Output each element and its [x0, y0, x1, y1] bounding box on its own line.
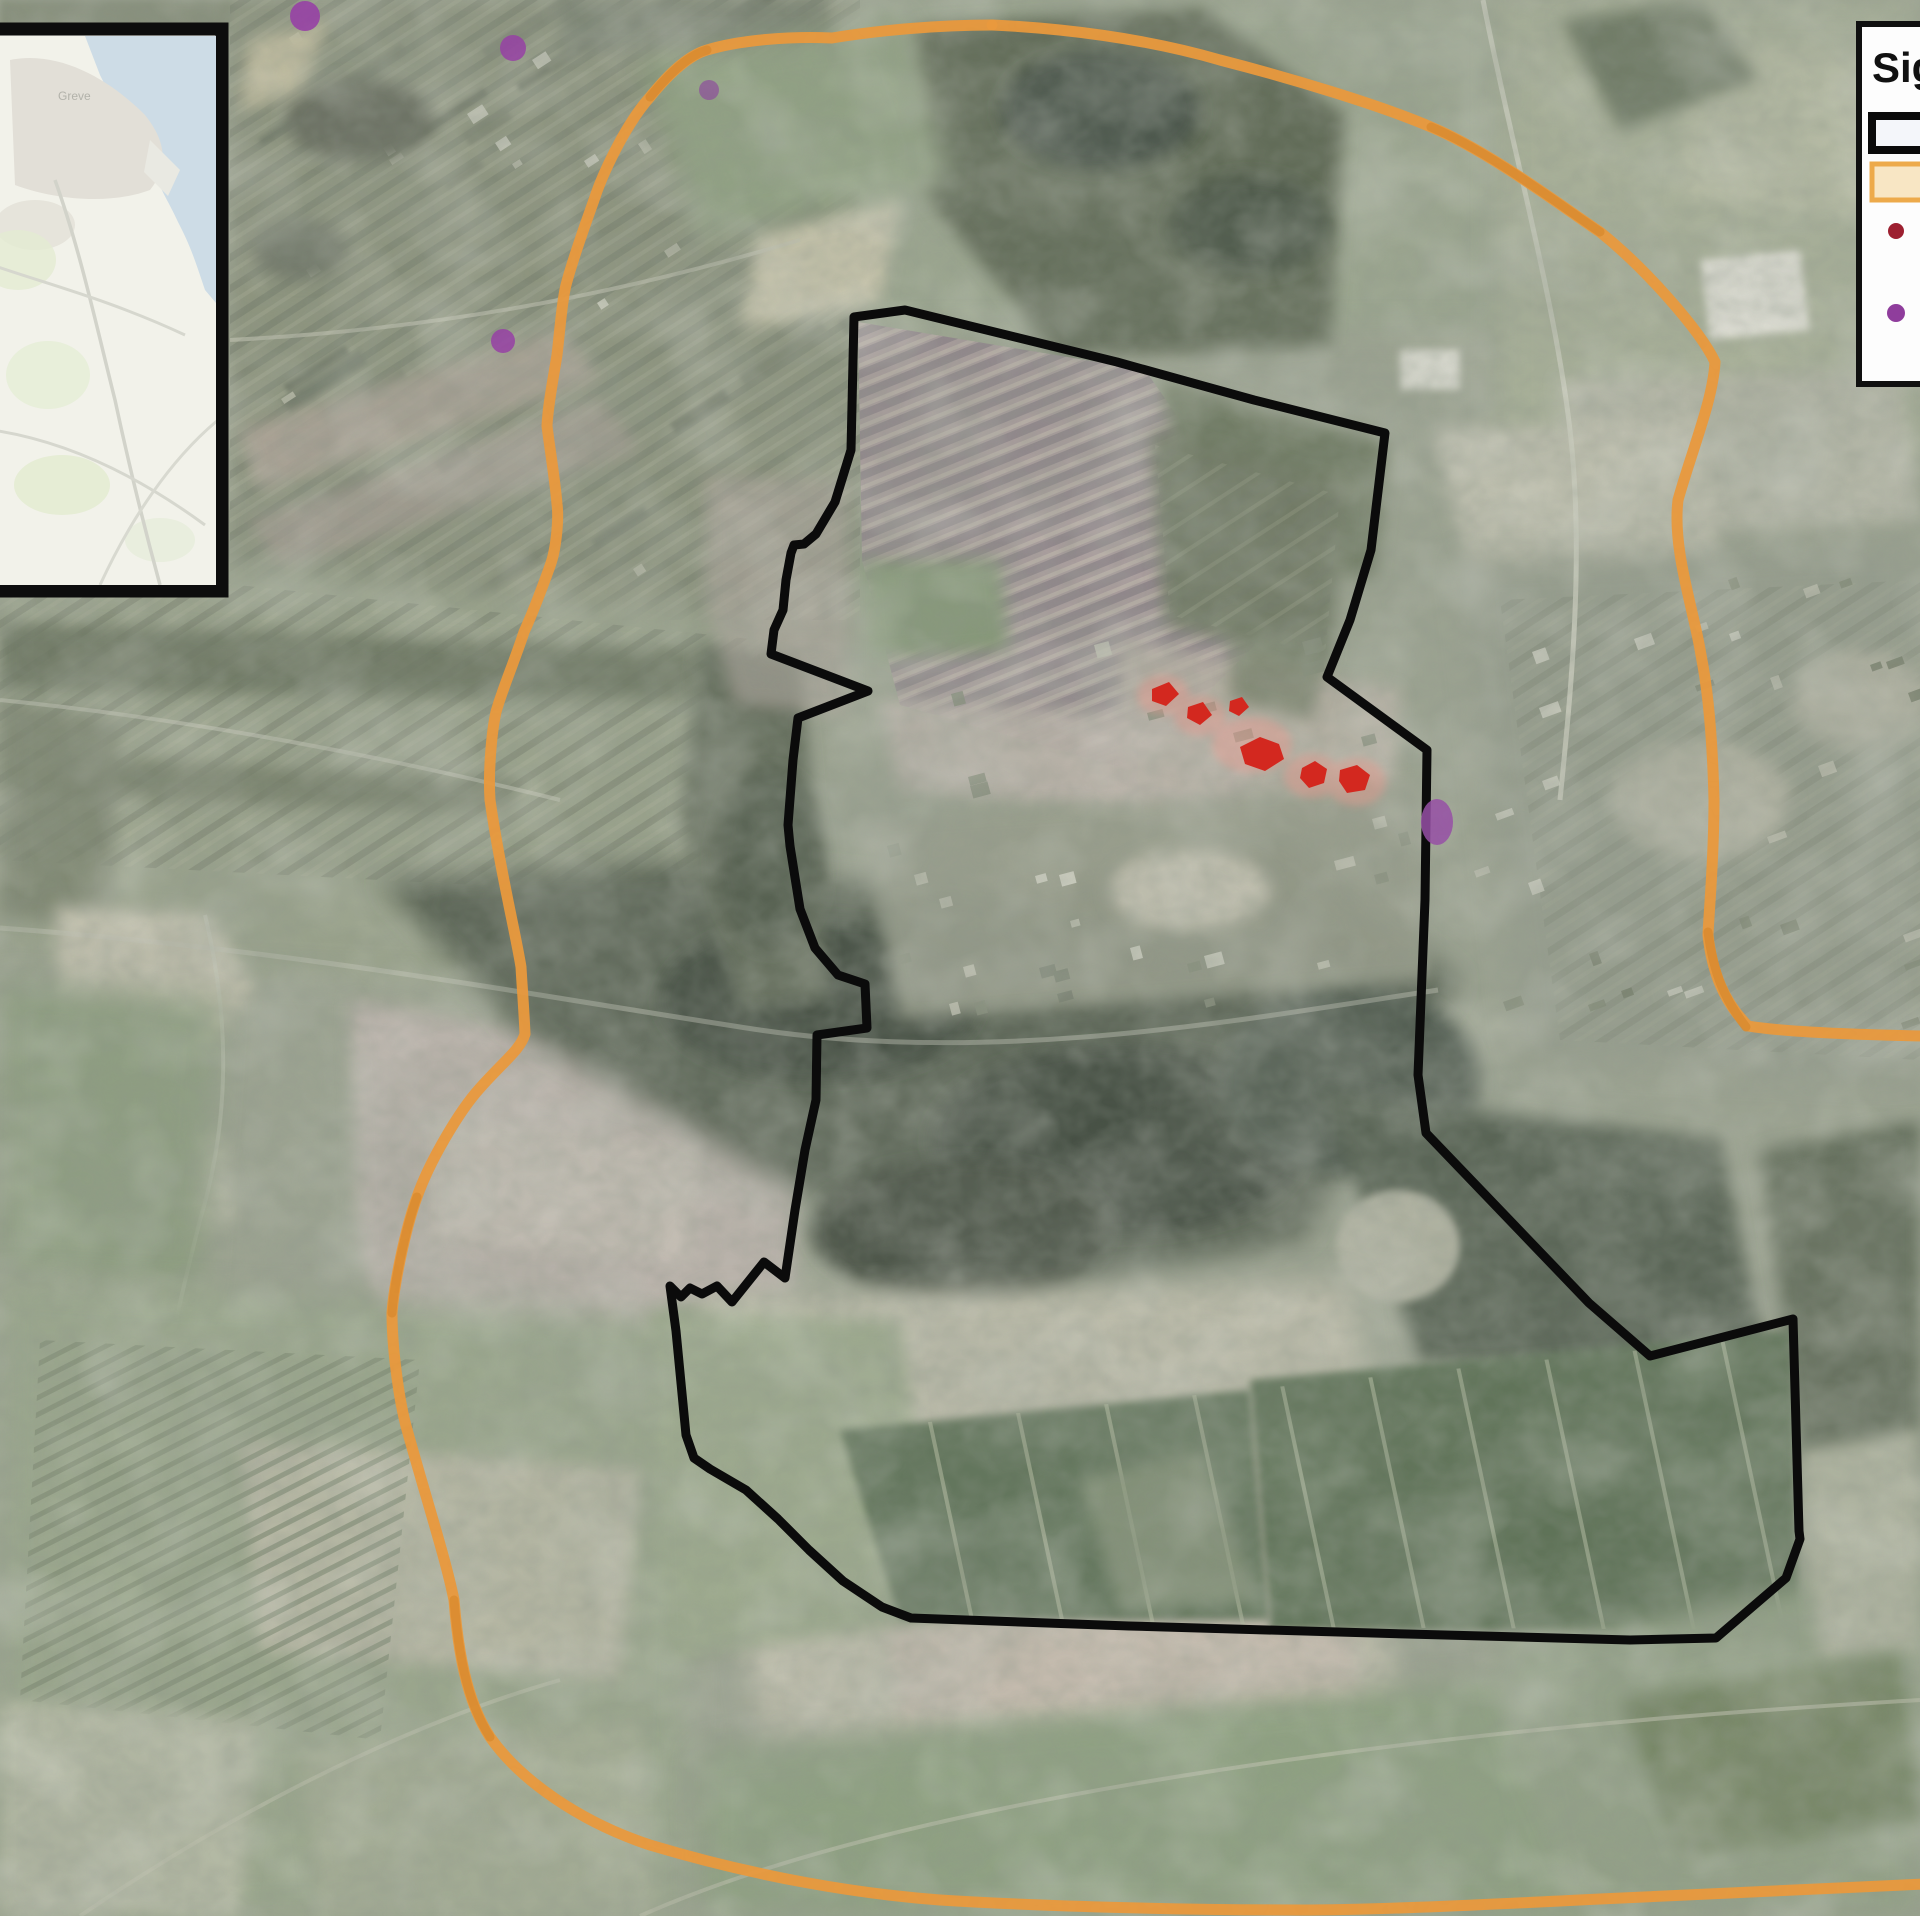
svg-text:Sign: Sign [1872, 44, 1920, 91]
svg-text:Greve: Greve [58, 89, 91, 103]
